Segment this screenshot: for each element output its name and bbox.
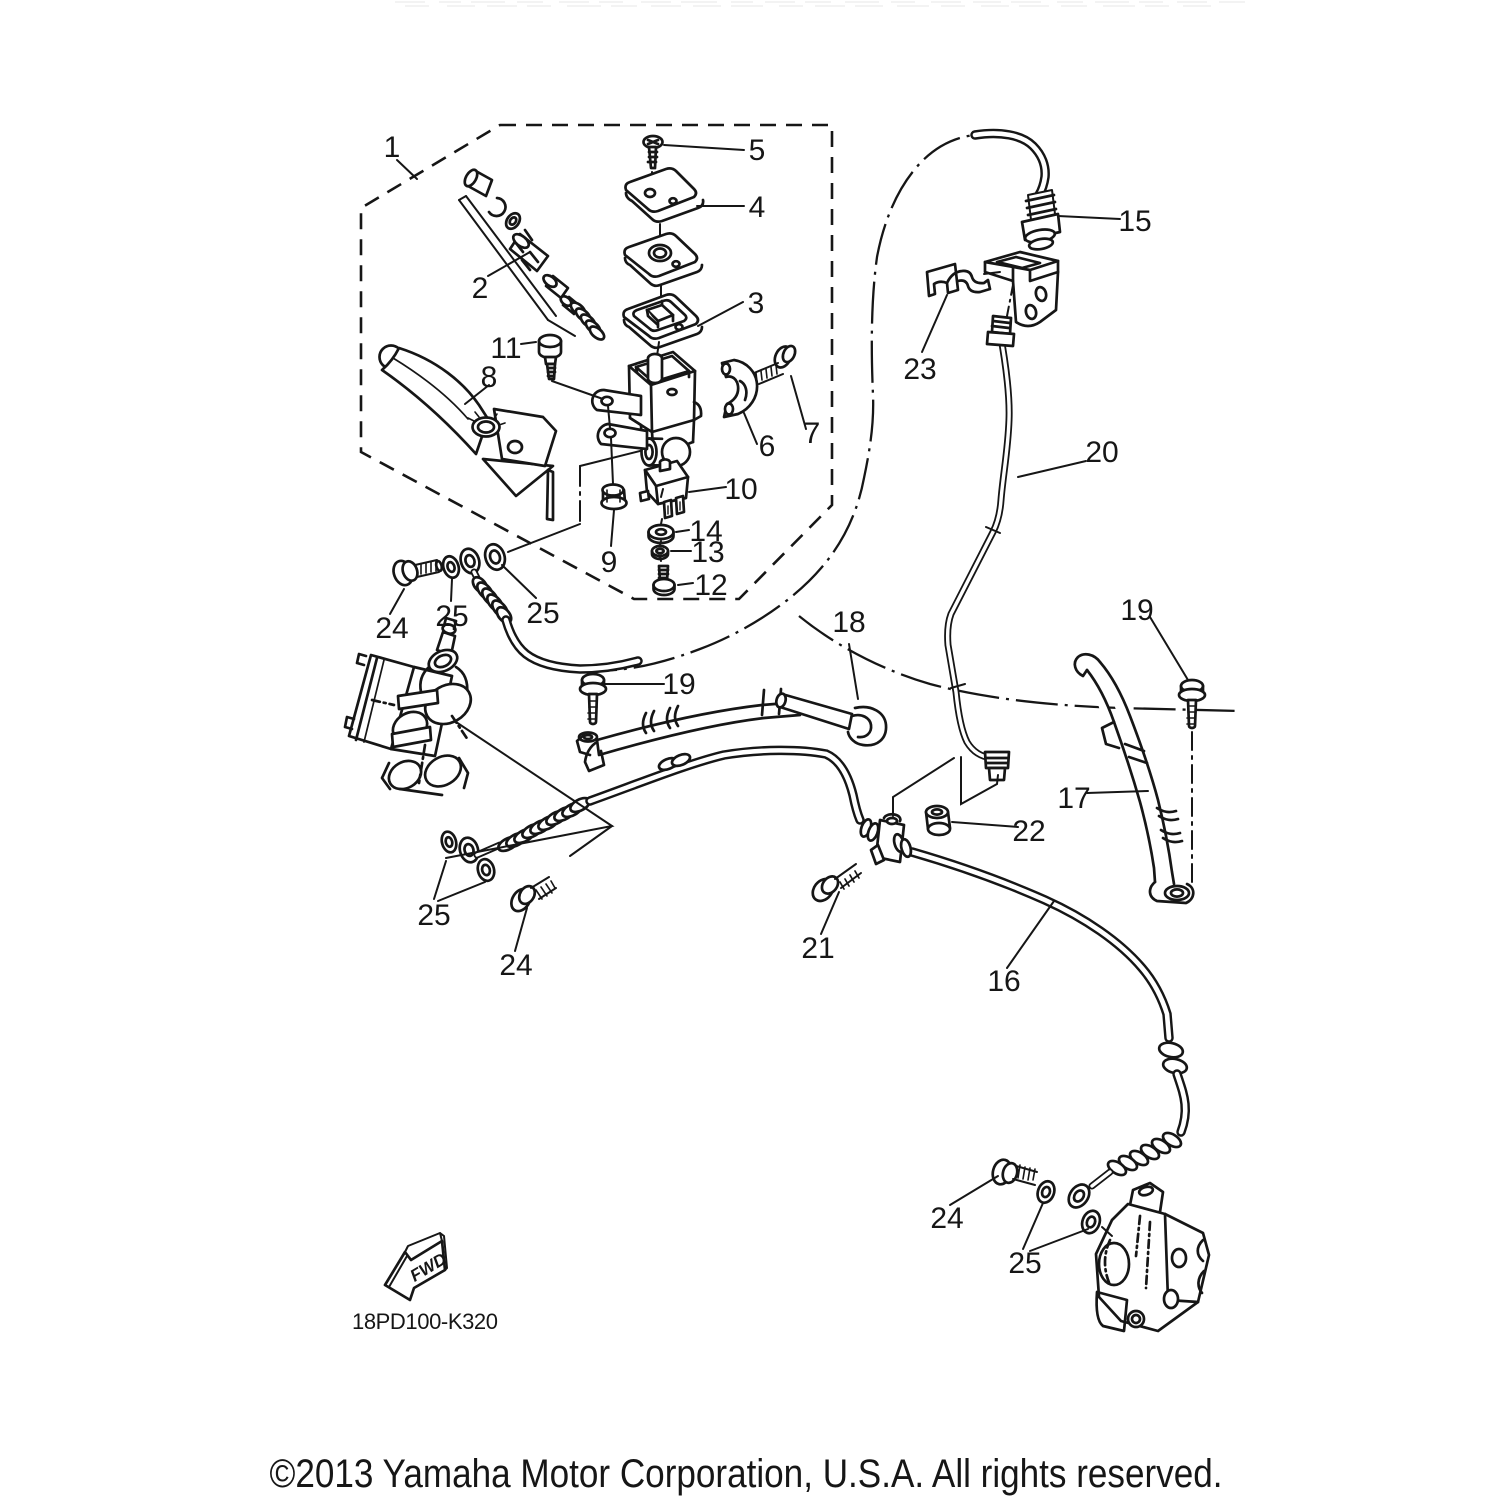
svg-text:©2013 Yamaha Motor Corporation: ©2013 Yamaha Motor Corporation, U.S.A. A… — [270, 1452, 1223, 1496]
svg-text:25: 25 — [435, 600, 468, 633]
svg-text:17: 17 — [1057, 782, 1090, 815]
svg-text:25: 25 — [417, 899, 450, 932]
svg-text:23: 23 — [903, 353, 936, 386]
svg-text:19: 19 — [1120, 594, 1153, 627]
svg-text:22: 22 — [1012, 815, 1045, 848]
svg-text:25: 25 — [526, 597, 559, 630]
svg-text:5: 5 — [749, 134, 766, 167]
svg-text:2: 2 — [472, 272, 489, 305]
svg-text:4: 4 — [749, 191, 766, 224]
svg-text:21: 21 — [801, 932, 834, 965]
svg-text:7: 7 — [804, 417, 821, 450]
svg-text:1: 1 — [384, 131, 401, 164]
svg-text:24: 24 — [375, 612, 408, 645]
svg-text:9: 9 — [601, 546, 618, 579]
svg-text:24: 24 — [499, 949, 532, 982]
svg-text:13: 13 — [691, 536, 724, 569]
svg-text:18PD100-K320: 18PD100-K320 — [352, 1309, 498, 1334]
svg-text:20: 20 — [1085, 436, 1118, 469]
svg-text:16: 16 — [987, 965, 1020, 998]
svg-text:8: 8 — [481, 361, 498, 394]
svg-text:18: 18 — [832, 606, 865, 639]
svg-text:3: 3 — [748, 287, 765, 320]
svg-text:10: 10 — [724, 473, 757, 506]
svg-text:6: 6 — [759, 430, 776, 463]
svg-text:12: 12 — [694, 569, 727, 602]
svg-text:15: 15 — [1118, 205, 1151, 238]
svg-text:19: 19 — [662, 668, 695, 701]
svg-text:24: 24 — [930, 1202, 963, 1235]
svg-text:25: 25 — [1008, 1247, 1041, 1280]
